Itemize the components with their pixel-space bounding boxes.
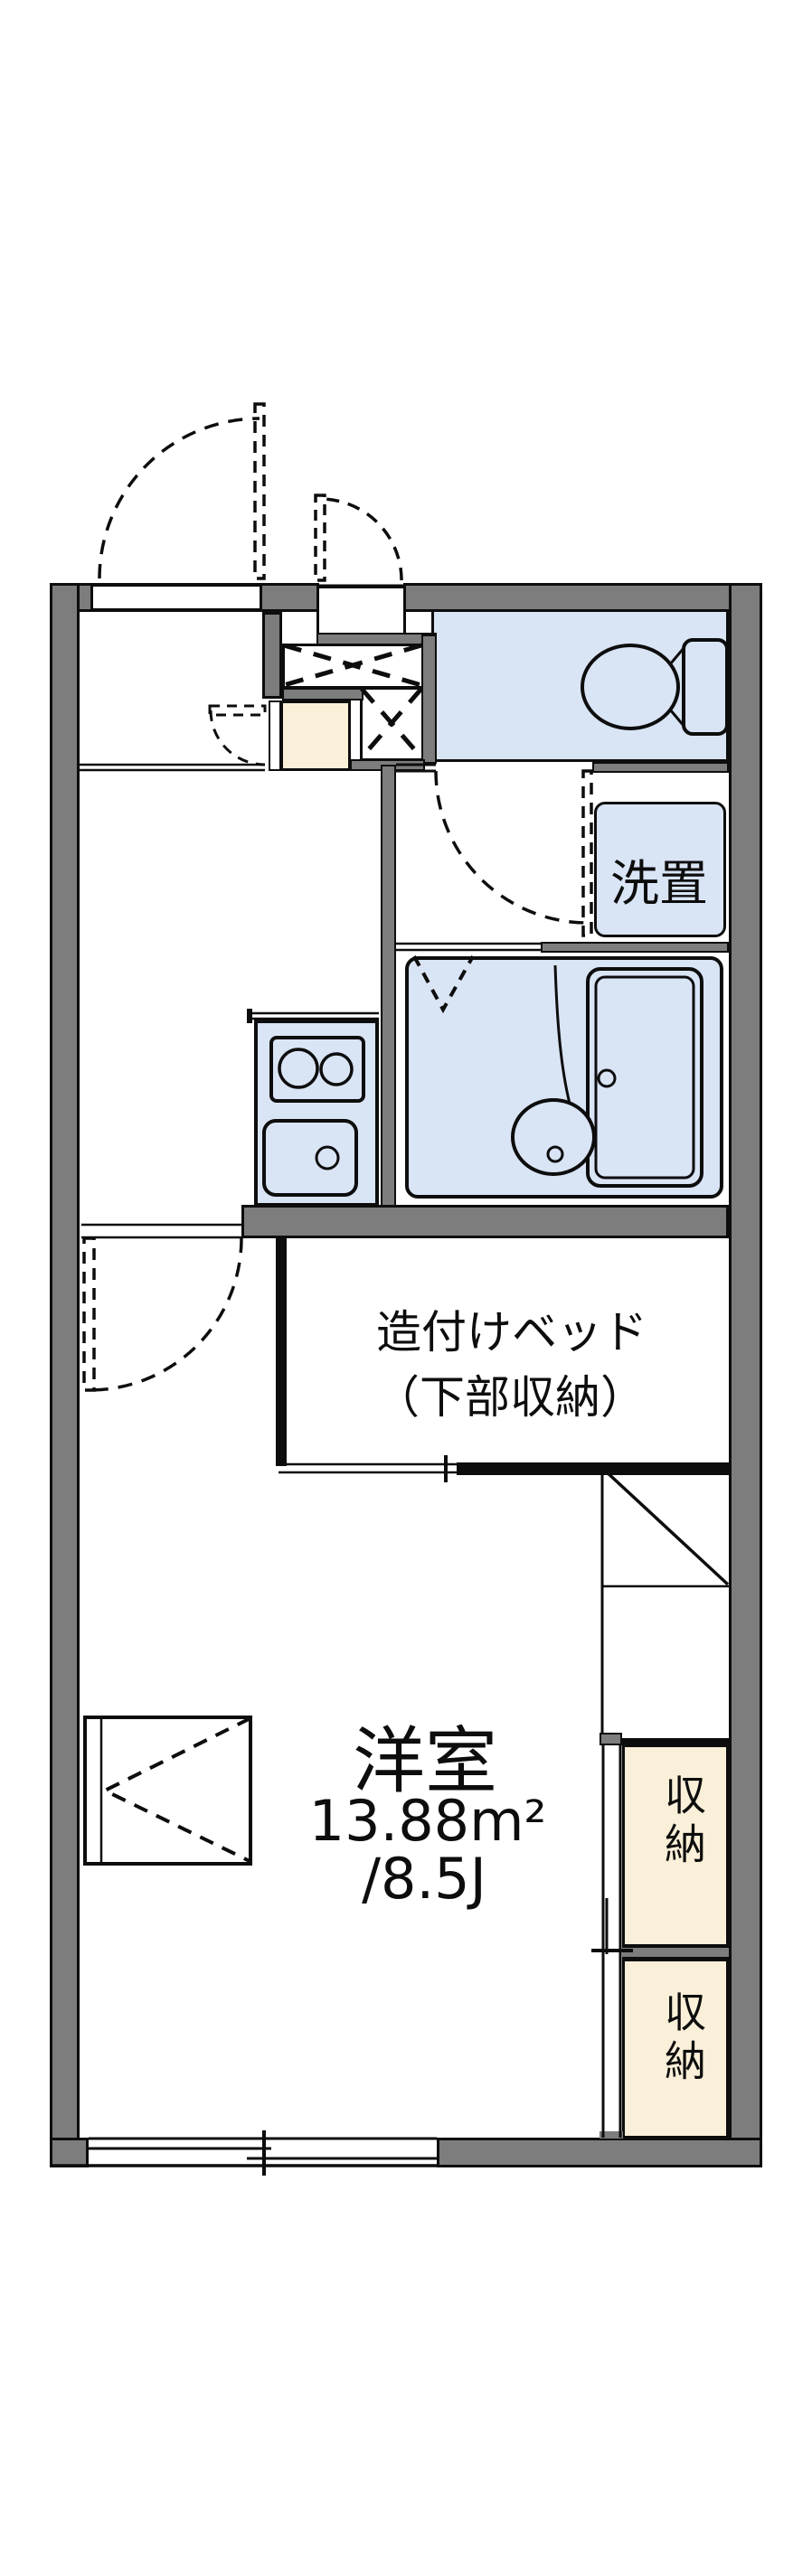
room-door-swing-arc <box>90 1238 241 1390</box>
closet-toilet-wall <box>421 635 437 764</box>
entry-door-swing-arc <box>99 418 260 578</box>
side-window-bay <box>83 1716 252 1866</box>
cabinet-door-swing-arc <box>211 710 265 765</box>
shoe-closet-upper <box>282 644 425 689</box>
entrance-closet-wall <box>262 612 282 699</box>
cabinet-door-sliver <box>269 700 281 771</box>
left-wall <box>50 583 80 2167</box>
toilet-door-swing-arc <box>436 771 588 923</box>
built-in-bed-label-line1: 造付けベッド <box>376 1296 647 1361</box>
bottom-wall-right-segment <box>437 2138 762 2167</box>
main-room-area-m2: 13.88m² <box>309 1788 547 1854</box>
stove-burner-left <box>279 1049 317 1087</box>
bathroom <box>405 956 723 1199</box>
refrigerator-diagonal <box>604 1470 728 1584</box>
storage-top-line <box>621 1738 729 1745</box>
top-wall-mid-segment <box>260 583 319 612</box>
storage-separator <box>622 1945 729 1960</box>
kitchen-unit <box>256 1021 377 1205</box>
kitchen-washroom-divider-wall <box>381 765 396 1208</box>
niche-door-swing-arc <box>320 499 401 580</box>
bed-sliding-panel-lines <box>279 1464 460 1472</box>
stove-burner-right <box>321 1054 352 1085</box>
niche-bottom-wall <box>316 633 437 645</box>
bathroom-top-wall <box>541 942 729 953</box>
storage-bottom-stub <box>600 2131 623 2139</box>
shoe-cabinet <box>280 700 351 771</box>
toilet-room <box>431 609 729 762</box>
bed-bottom-wall <box>457 1462 730 1475</box>
bath-door-track-lines <box>396 944 541 950</box>
bed-top-wall <box>241 1205 729 1238</box>
closet-step-wall <box>282 688 364 700</box>
storage-top-stub-wall <box>600 1733 622 1745</box>
sink-drain <box>316 1147 338 1169</box>
top-wall-right-segment <box>403 583 762 612</box>
shoe-closet-lower <box>360 687 425 761</box>
kitchen-stove <box>271 1038 364 1101</box>
room-opening-lines <box>81 1225 241 1237</box>
floorplan-canvas: 洗置 造付けベッド （下部収納） 洋室 13.88m² /8.5J 収納 収納 <box>0 0 812 2576</box>
entry-door-leaf <box>255 404 264 578</box>
storage-track-lines <box>603 1745 620 2138</box>
bed-left-wall <box>276 1236 287 1466</box>
niche-door-leaf <box>316 495 325 580</box>
toilet-bottom-wall <box>592 762 729 773</box>
toilet-door-leaf <box>583 771 591 935</box>
storage-lower-label: 収納 <box>653 1990 713 2088</box>
main-room-area-tatami: /8.5J <box>362 1846 486 1912</box>
room-door-leaf <box>84 1238 94 1390</box>
built-in-bed-label-line2: （下部収納） <box>374 1361 646 1426</box>
linework-overlay <box>0 0 812 2576</box>
entry-niche <box>316 586 406 635</box>
kitchen-sink <box>264 1121 356 1195</box>
washer-place-label: 洗置 <box>610 843 708 915</box>
entrance-step-line <box>80 765 265 770</box>
storage-upper-label: 収納 <box>653 1773 713 1871</box>
bottom-wall-left-corner <box>50 2138 89 2167</box>
cabinet-door-leaf <box>210 706 265 715</box>
right-wall <box>729 583 762 2167</box>
kitchen-counter-lines <box>249 1013 379 1019</box>
